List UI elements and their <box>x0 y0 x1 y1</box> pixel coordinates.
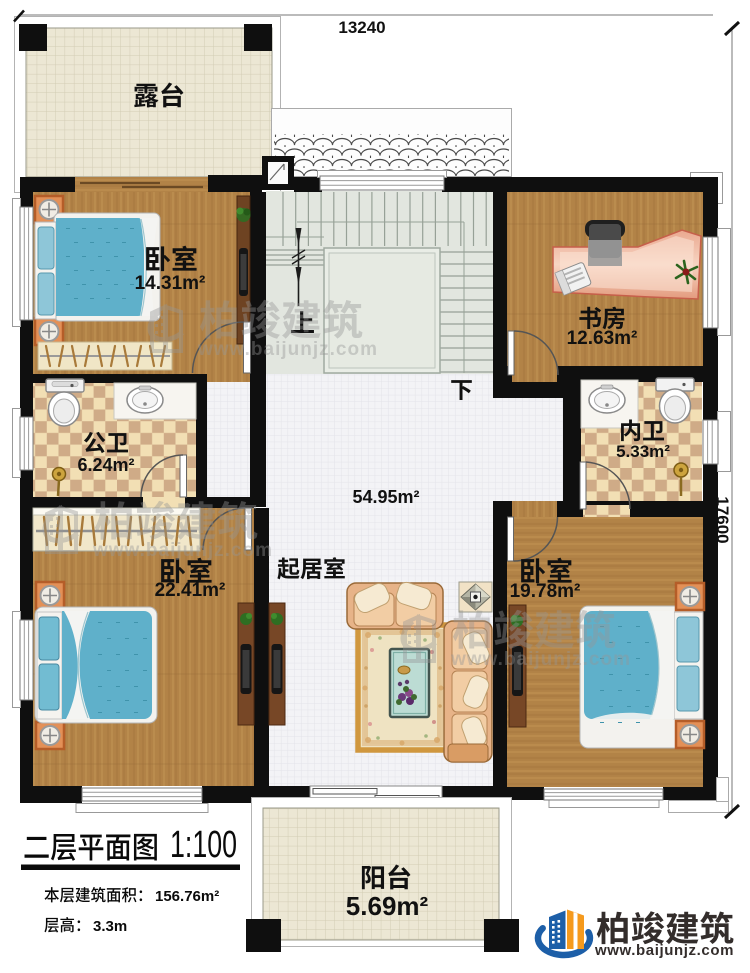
svg-text:22.41m²: 22.41m² <box>155 580 226 601</box>
svg-text:www.baijunjz.com: www.baijunjz.com <box>594 942 734 959</box>
svg-text:1:100: 1:100 <box>170 824 237 866</box>
svg-text:5.33m²: 5.33m² <box>616 442 670 461</box>
svg-text:6.24m²: 6.24m² <box>77 455 134 475</box>
svg-text:14.31m²: 14.31m² <box>135 273 206 294</box>
svg-text:54.95m²: 54.95m² <box>352 487 419 507</box>
svg-text:5.69m²: 5.69m² <box>346 891 429 921</box>
svg-text:12.63m²: 12.63m² <box>567 328 638 349</box>
svg-text:156.76m²: 156.76m² <box>155 888 219 905</box>
svg-text:13240: 13240 <box>338 18 385 37</box>
svg-text:19.78m²: 19.78m² <box>510 581 581 602</box>
svg-text:3.3m: 3.3m <box>93 918 127 935</box>
